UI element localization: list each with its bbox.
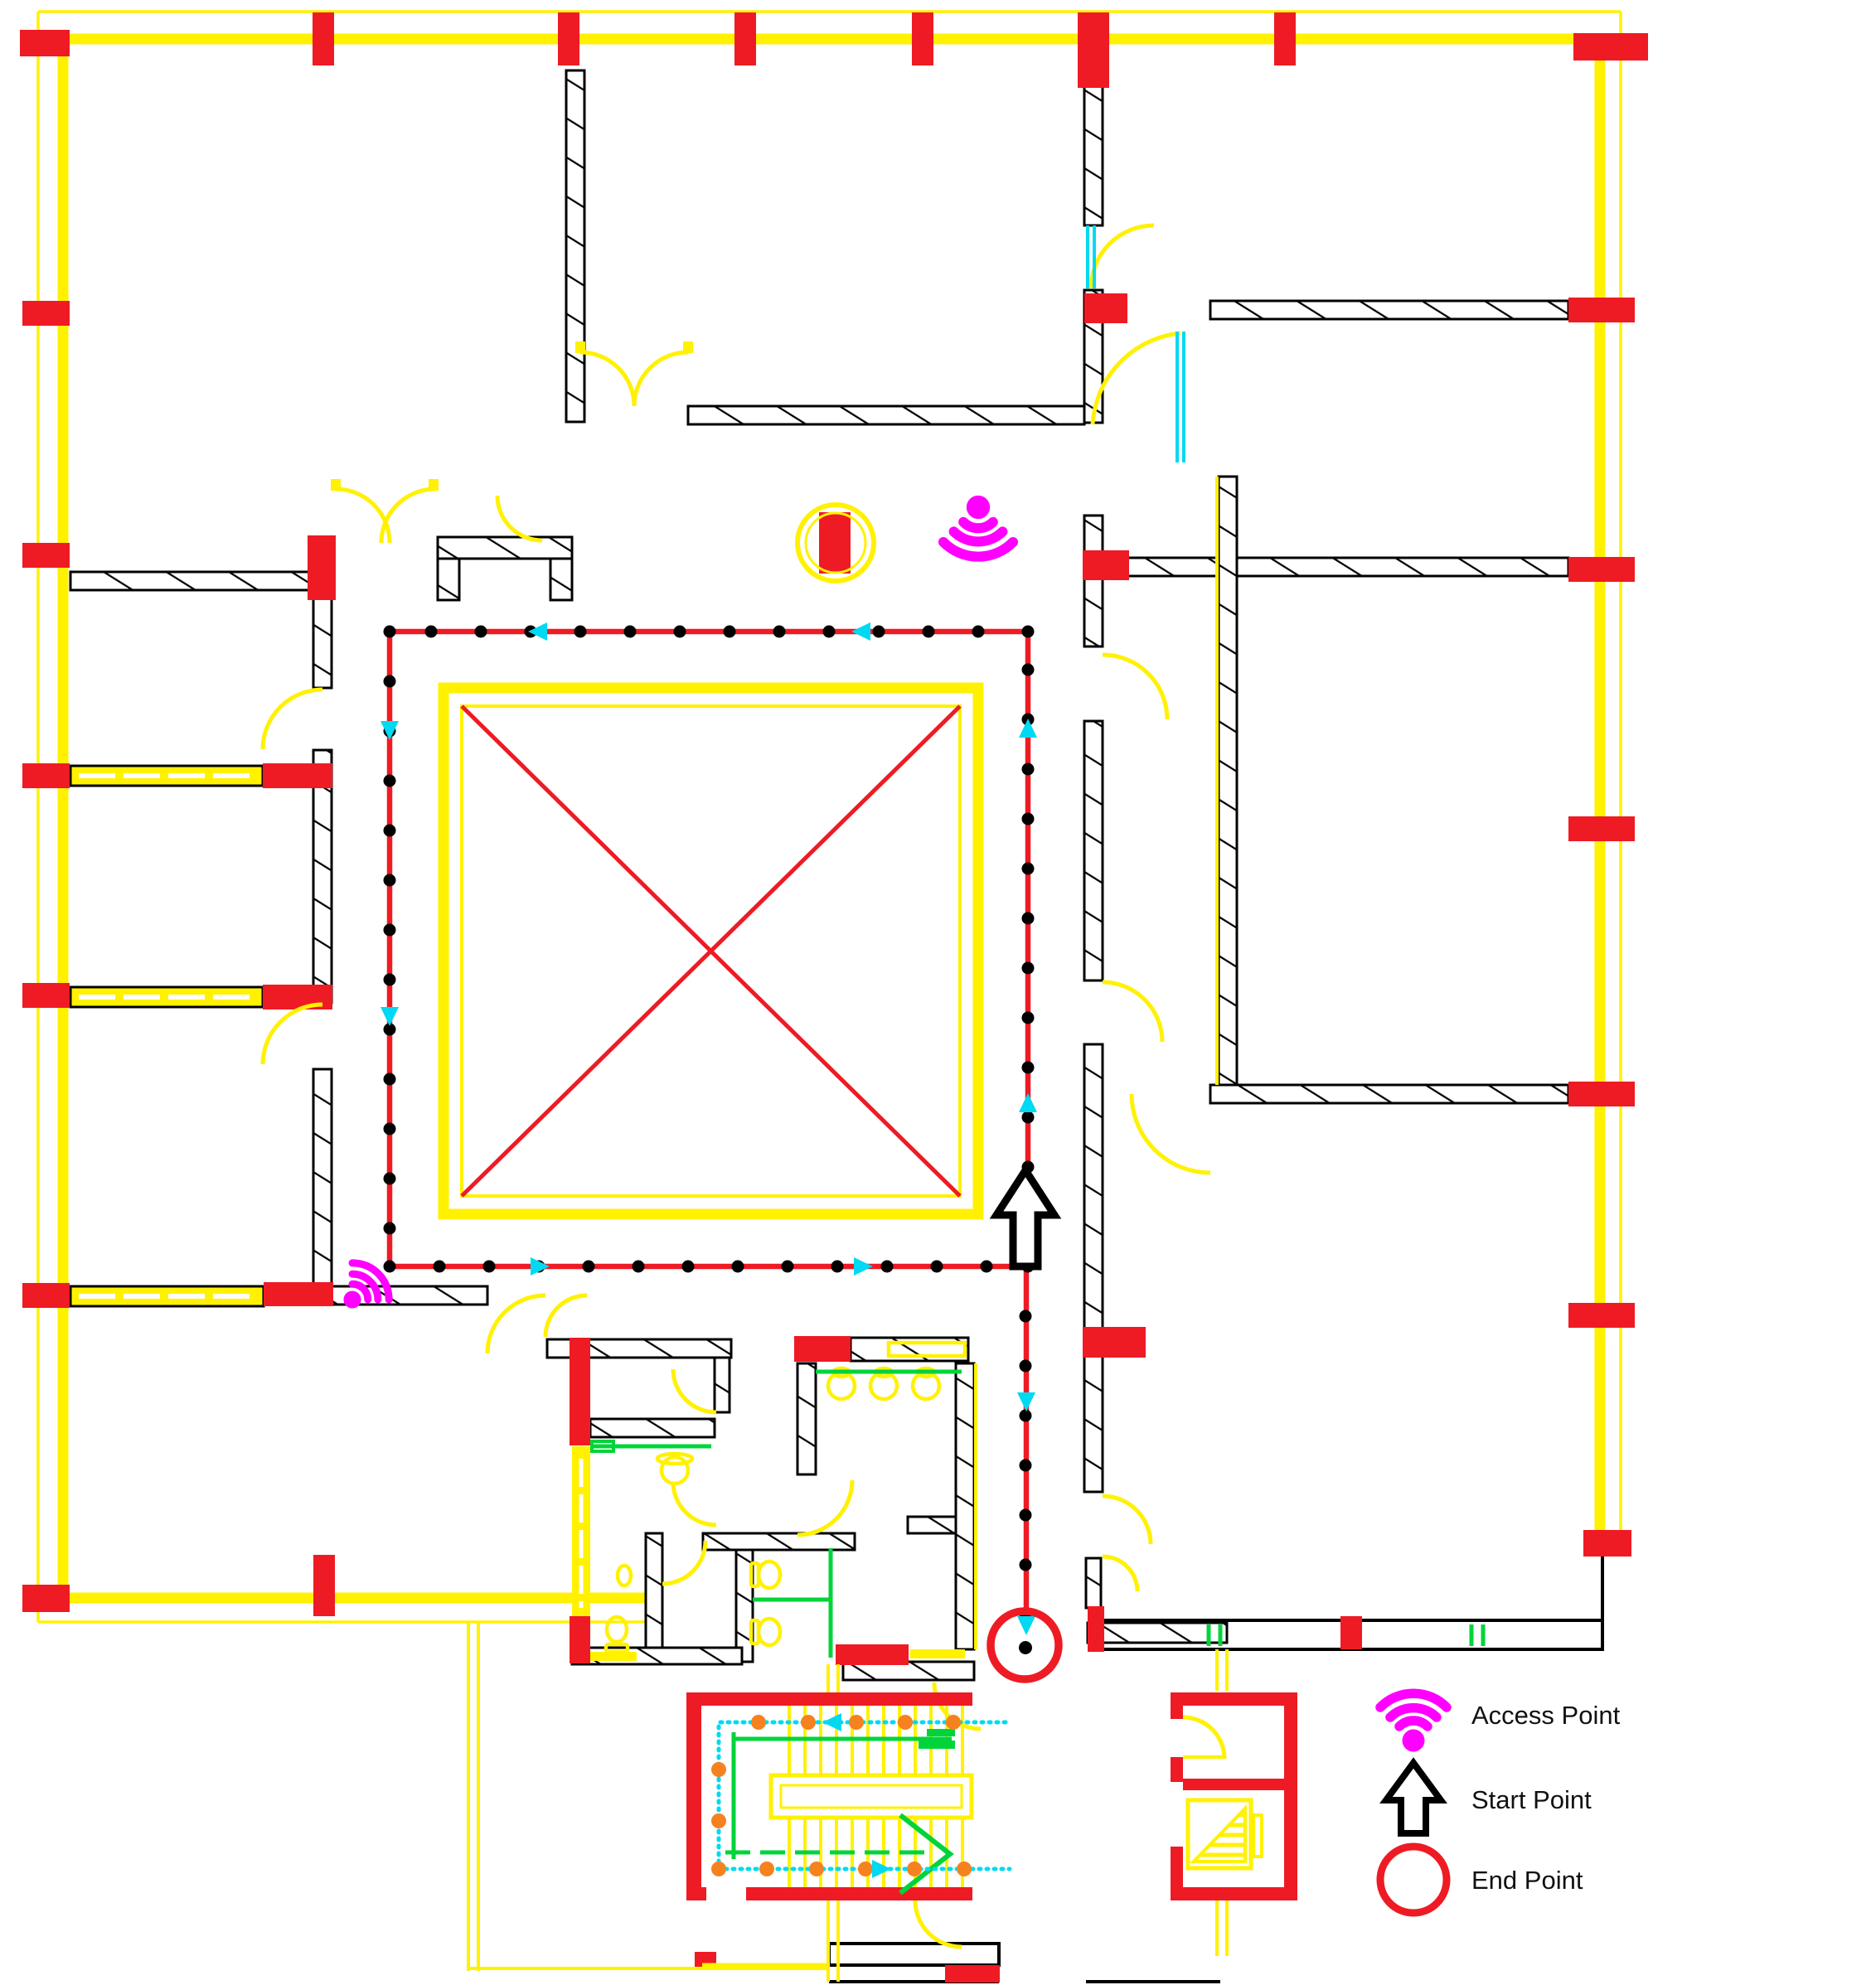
route-dot [1022, 1012, 1035, 1024]
route-dot [384, 1073, 396, 1086]
route-dot [724, 626, 736, 638]
floor-plan-canvas: Access Point Start Point End Point [0, 0, 1876, 1985]
window-wall [70, 1286, 264, 1306]
route-dot [858, 1862, 873, 1876]
wall [1210, 301, 1568, 319]
wall [1088, 1623, 1227, 1643]
legend-label: Start Point [1471, 1785, 1592, 1814]
route-dot [384, 675, 396, 688]
direction-arrow [872, 1860, 891, 1878]
wall [1219, 477, 1237, 1085]
route-dot [384, 825, 396, 837]
route-dot [981, 1261, 993, 1273]
direction-arrow [381, 1007, 399, 1026]
route-dot [946, 1715, 961, 1730]
route-dot [1020, 1410, 1032, 1422]
route-dot [682, 1261, 695, 1273]
legend-item-start-point: Start Point [1386, 1763, 1592, 1833]
route-dot [624, 626, 637, 638]
route-dot [483, 1261, 496, 1273]
legend-item-access-point: Access Point [1380, 1693, 1621, 1751]
wall [550, 559, 572, 600]
direction-arrow [851, 622, 870, 641]
central-shaft [444, 688, 978, 1214]
direction-arrow [528, 622, 547, 641]
route-dot [957, 1862, 972, 1876]
route-dot [711, 1862, 726, 1876]
wall [646, 1533, 662, 1662]
route-dot [751, 1715, 766, 1730]
route-dot [801, 1715, 816, 1730]
route-dot [384, 775, 396, 787]
wall [688, 406, 1084, 424]
route-dot [732, 1261, 744, 1273]
wifi-icon [1380, 1693, 1447, 1751]
direction-arrow [381, 721, 399, 740]
outer-walls [25, 12, 1621, 1622]
route-dot [923, 626, 935, 638]
route-dot [583, 1261, 595, 1273]
route-dot [1022, 813, 1035, 825]
route-dot [1022, 962, 1035, 975]
route-dot [1022, 626, 1035, 638]
direction-arrow [1019, 1093, 1037, 1112]
direction-arrow [1017, 1392, 1035, 1411]
route-dot [384, 626, 396, 638]
route-dot [384, 1173, 396, 1185]
legend-label: End Point [1471, 1866, 1583, 1895]
route-dot [711, 1813, 726, 1828]
route-dot [773, 626, 786, 638]
wall [703, 1533, 855, 1550]
window-wall [70, 987, 263, 1007]
wall [590, 1419, 715, 1437]
route-dot [475, 626, 487, 638]
route-dot [782, 1261, 794, 1273]
route-dot [907, 1862, 922, 1876]
wall [956, 1363, 974, 1649]
route-dot [1020, 1559, 1032, 1571]
route-dot [1020, 1310, 1032, 1323]
route-dot [711, 1762, 726, 1777]
direction-arrow [531, 1257, 550, 1276]
wall [70, 572, 309, 590]
route-dot [674, 626, 686, 638]
floor-plan-page: Access Point Start Point End Point [0, 0, 1876, 1985]
route-dot [831, 1261, 844, 1273]
route-dot [384, 874, 396, 887]
route-dot [898, 1715, 913, 1730]
wall [1084, 516, 1103, 646]
route-dot [873, 626, 885, 638]
route-dot [809, 1862, 824, 1876]
route-dot [425, 626, 438, 638]
route-dot [931, 1261, 943, 1273]
route-dot [434, 1261, 446, 1273]
route-dot [574, 626, 587, 638]
window-walls [70, 766, 264, 1306]
route-dot [881, 1261, 894, 1273]
wall [715, 1358, 730, 1412]
interior-walls [70, 51, 1568, 1680]
wall [438, 537, 572, 559]
route-dot [1019, 1641, 1032, 1654]
legend-label: Access Point [1471, 1701, 1621, 1730]
route-dot [384, 1123, 396, 1135]
elevator [1171, 1692, 1297, 1900]
access-point-icon [943, 496, 1013, 557]
route-dot [849, 1715, 864, 1730]
window-wall [70, 766, 263, 786]
bathroom-fixtures [572, 1343, 965, 1661]
route-dot [759, 1862, 774, 1876]
start-point-marker [996, 1170, 1054, 1266]
route-dot [1020, 1360, 1032, 1373]
route-dot [1020, 1509, 1032, 1522]
route-dot [1022, 1062, 1035, 1074]
wall [1086, 1558, 1101, 1608]
legend-item-end-point: End Point [1380, 1847, 1583, 1913]
direction-arrow [822, 1713, 841, 1731]
wall [1084, 721, 1103, 980]
route-dot [1022, 763, 1035, 776]
route-dot [1020, 1460, 1032, 1472]
wall [1210, 1085, 1568, 1103]
wall [313, 1069, 332, 1289]
wall [438, 559, 459, 600]
direction-arrow [854, 1257, 873, 1276]
route-dot [1022, 664, 1035, 676]
wall [566, 70, 584, 422]
route-dot [633, 1261, 645, 1273]
stair-landing [769, 1774, 973, 1819]
route-dot [384, 924, 396, 937]
wall [797, 1363, 816, 1474]
route-dot [384, 1261, 396, 1273]
route-dot [1022, 863, 1035, 875]
door-arcs [263, 225, 1224, 1947]
legend: Access Point Start Point End Point [1380, 1693, 1621, 1913]
route-dot [384, 974, 396, 986]
wall [1104, 558, 1568, 576]
route-dot [972, 626, 985, 638]
route-dot [1022, 1111, 1035, 1124]
circle-icon [1380, 1847, 1447, 1913]
direction-arrow [1019, 719, 1037, 738]
arrow-up-icon [1386, 1763, 1441, 1833]
direction-arrow [1017, 1616, 1035, 1635]
route-dot [384, 1222, 396, 1235]
route-dot [823, 626, 836, 638]
elevator-car [1188, 1800, 1262, 1868]
route-dot [1022, 913, 1035, 925]
wall [1084, 1044, 1103, 1492]
wall [908, 1517, 956, 1533]
